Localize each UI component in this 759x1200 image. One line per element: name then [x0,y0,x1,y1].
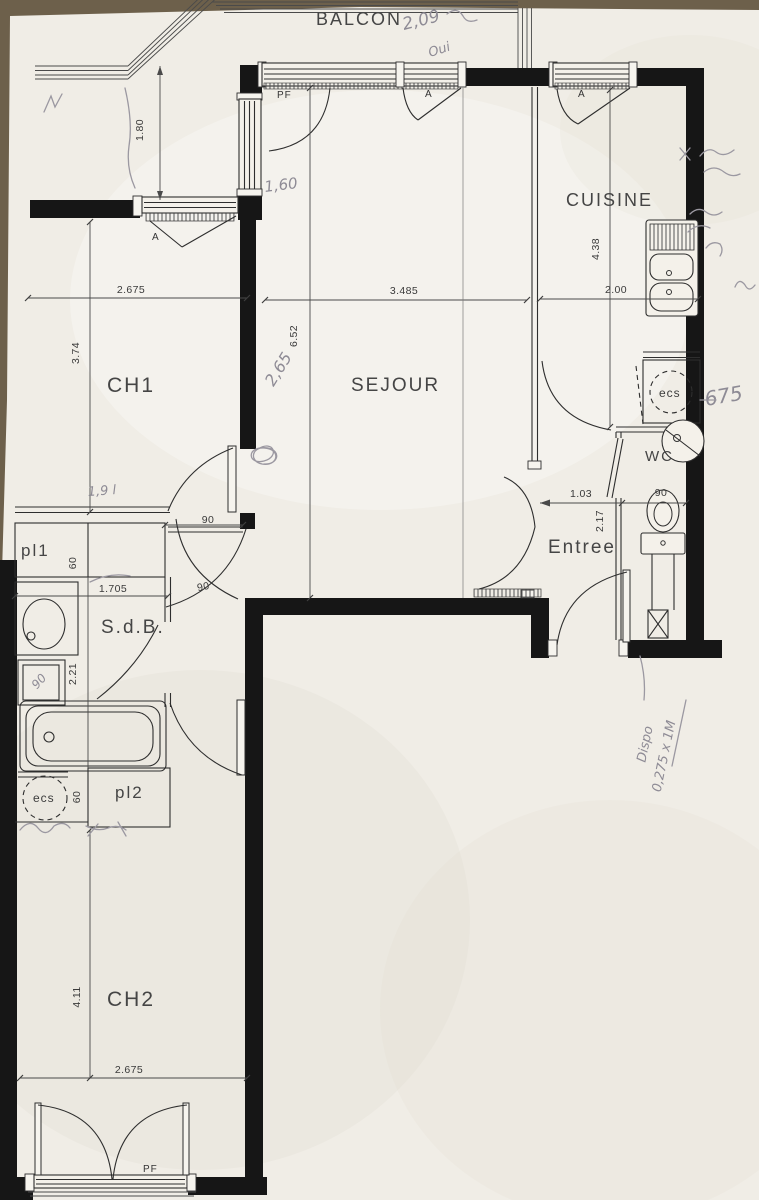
double-door-cap-top [528,461,541,469]
room-label-wc: WC [645,448,674,465]
ch2-window-cap-left [25,1174,34,1191]
dim-entree-depth: 2.17 [594,510,606,532]
wall-corridor-east [245,603,263,1195]
sink-basin-2 [650,283,693,311]
wall-ch1-top [30,200,140,218]
room-label-sdb: S.d.B. [101,617,165,638]
sink-drainboard [650,224,694,250]
dim-sdb-door: 90 [202,514,214,526]
cuisine-window-cap-right [629,62,637,87]
wall-ch2-south [188,1177,267,1195]
dim-balcony-depth: 1.80 [134,119,146,141]
wall-entree-step [531,598,549,658]
dim-sdb-width: 1.705 [99,583,127,595]
entree-radiator [474,589,541,597]
room-label-ch2: CH2 [107,988,155,1011]
ch1-window-sill [146,213,234,221]
dim-hall-door: 90 [196,580,211,594]
dim-cuisine-depth: 4.38 [590,238,602,260]
sejour-window-cap-mid [396,62,404,87]
dim-wc-width: 90 [655,487,667,499]
wall-entree-south [628,640,722,658]
window-label-pf-sejour: PF [277,90,292,101]
room-label-ch1: CH1 [107,374,155,397]
dim-entree-width: 1.03 [570,488,592,500]
floor-plan-drawing: BALCON CH1 SEJOUR CUISINE S.d.B. Entree … [0,0,759,1200]
dim-ch1-width: 2.675 [117,284,145,296]
dim-pl1-depth: 60 [67,557,79,569]
room-label-sejour: SEJOUR [351,375,440,396]
ch2-door-leaf-left [35,1103,41,1175]
closet-label-pl2: pl2 [115,783,144,802]
toilet-tank [641,533,685,554]
ch1-window-cap-left [133,196,142,216]
dim-sejour-width: 3.485 [390,285,418,297]
balcony-window-cap-bottom [237,189,262,196]
ch2-door-leaf-right [183,1103,189,1175]
dim-ecs-width: 60 [71,791,83,803]
ch2-window-frame [34,1175,187,1188]
dim-sejour-depth: 6.52 [288,325,300,347]
room-label-entree: Entree [548,537,616,558]
ch2-corridor-door-leaf [237,700,245,775]
window-label-a-sejour: A [425,89,433,100]
dim-ch2-depth: 4.11 [71,986,83,1007]
wall-left [0,560,17,1200]
sink-basin-1 [650,254,693,280]
ch1-door-leaf [228,446,236,512]
window-label-pf-ch2: PF [143,1164,158,1175]
entrance-door-leaf [623,570,630,642]
ecs-sdb-label: ecs [33,791,55,805]
ch1-window-frame [142,197,238,213]
ch2-window-cap-right [187,1174,196,1191]
balcony-label: BALCON [316,9,402,29]
window-label-a-cuisine: A [578,89,586,100]
wall-right [686,80,704,658]
cuisine-window-sill [555,83,629,89]
scanned-floor-plan-photo: BALCON CH1 SEJOUR CUISINE S.d.B. Entree … [0,0,759,1200]
handwritten-hall-note: 1,9 l [87,483,117,500]
ecs-kitchen-label: ecs [659,386,681,400]
dim-ch1-depth: 3.74 [70,342,82,364]
dim-cuisine-width: 2.00 [605,284,627,296]
entrance-cap-left [548,640,557,656]
wall-top-middle [462,68,553,86]
room-label-cuisine: CUISINE [566,190,653,210]
sejour-window-cap-right [458,62,466,87]
closet-label-pl1: pl1 [21,541,50,560]
window-label-a-ch1: A [152,232,160,243]
dim-ch2-width: 2.675 [115,1064,143,1076]
wall-ch1-sejour [240,218,256,449]
wall-hall-south [245,598,531,615]
dim-sdb-depth: 2.21 [67,663,79,685]
